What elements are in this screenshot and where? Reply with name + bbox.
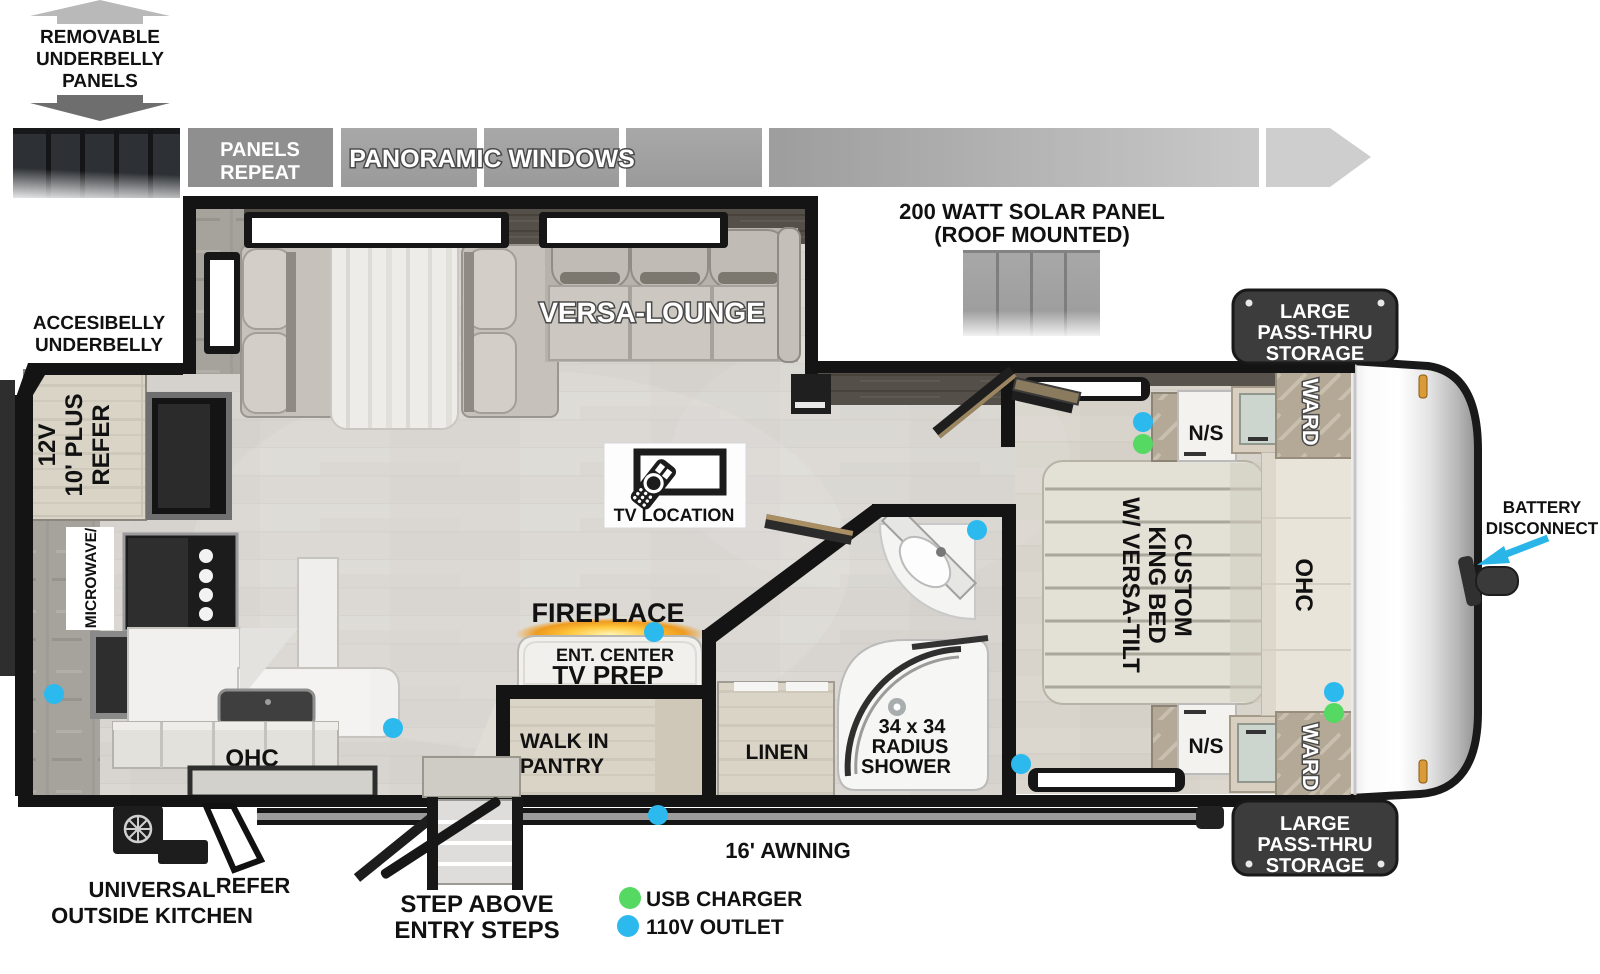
- svg-text:STORAGE: STORAGE: [1266, 855, 1365, 877]
- svg-text:VERSA-LOUNGE: VERSA-LOUNGE: [539, 297, 765, 328]
- svg-text:LARGE: LARGE: [1280, 813, 1350, 835]
- svg-text:PANTRY: PANTRY: [520, 755, 604, 778]
- svg-text:PASS-THRU: PASS-THRU: [1257, 322, 1372, 344]
- svg-text:W/ VERSA-TILT: W/ VERSA-TILT: [1117, 497, 1144, 673]
- svg-text:REFER: REFER: [216, 873, 291, 898]
- svg-text:N/S: N/S: [1188, 735, 1223, 758]
- svg-text:FIREPLACE: FIREPLACE: [531, 598, 684, 628]
- svg-text:WARD: WARD: [1298, 378, 1323, 445]
- svg-text:PASS-THRU: PASS-THRU: [1257, 834, 1372, 856]
- svg-text:200 WATT SOLAR PANEL: 200 WATT SOLAR PANEL: [899, 199, 1165, 224]
- svg-text:16' AWNING: 16' AWNING: [725, 838, 850, 863]
- svg-text:UNDERBELLY: UNDERBELLY: [36, 49, 164, 70]
- svg-text:MICROWAVE/: MICROWAVE/: [83, 527, 100, 628]
- svg-text:BATTERY: BATTERY: [1503, 498, 1582, 517]
- svg-text:12V: 12V: [34, 424, 61, 467]
- svg-text:LARGE: LARGE: [1280, 301, 1350, 323]
- svg-text:OUTSIDE KITCHEN: OUTSIDE KITCHEN: [51, 903, 253, 928]
- svg-text:110V OUTLET: 110V OUTLET: [646, 916, 784, 939]
- svg-text:DISCONNECT: DISCONNECT: [1486, 519, 1599, 538]
- svg-text:REPEAT: REPEAT: [220, 162, 300, 184]
- svg-text:PANORAMIC WINDOWS: PANORAMIC WINDOWS: [349, 145, 635, 173]
- svg-text:CUSTOM: CUSTOM: [1169, 533, 1196, 637]
- svg-text:UNIVERSAL: UNIVERSAL: [88, 877, 215, 902]
- svg-text:PANELS: PANELS: [62, 71, 138, 92]
- svg-text:STORAGE: STORAGE: [1266, 343, 1365, 365]
- svg-text:LINEN: LINEN: [746, 741, 809, 764]
- svg-text:OHC: OHC: [1290, 558, 1317, 611]
- svg-text:N/S: N/S: [1188, 422, 1223, 445]
- svg-text:KING BED: KING BED: [1143, 526, 1170, 643]
- svg-text:10' PLUS: 10' PLUS: [61, 393, 88, 496]
- svg-text:SHOWER: SHOWER: [861, 756, 952, 778]
- svg-text:34 x 34: 34 x 34: [879, 716, 947, 738]
- svg-text:STEP ABOVE: STEP ABOVE: [400, 891, 553, 918]
- svg-text:REMOVABLE: REMOVABLE: [40, 27, 160, 48]
- svg-text:ENTRY STEPS: ENTRY STEPS: [394, 917, 559, 944]
- svg-text:ACCESIBELLY: ACCESIBELLY: [33, 313, 166, 334]
- svg-text:TV LOCATION: TV LOCATION: [614, 505, 735, 525]
- svg-text:RADIUS: RADIUS: [872, 736, 949, 758]
- svg-text:(ROOF MOUNTED): (ROOF MOUNTED): [934, 222, 1130, 247]
- svg-text:USB CHARGER: USB CHARGER: [646, 888, 802, 911]
- svg-text:PANELS: PANELS: [220, 139, 300, 161]
- svg-text:WARD: WARD: [1298, 723, 1323, 790]
- svg-text:WALK IN: WALK IN: [520, 730, 609, 753]
- svg-text:UNDERBELLY: UNDERBELLY: [35, 335, 163, 356]
- svg-text:REFER: REFER: [88, 404, 115, 485]
